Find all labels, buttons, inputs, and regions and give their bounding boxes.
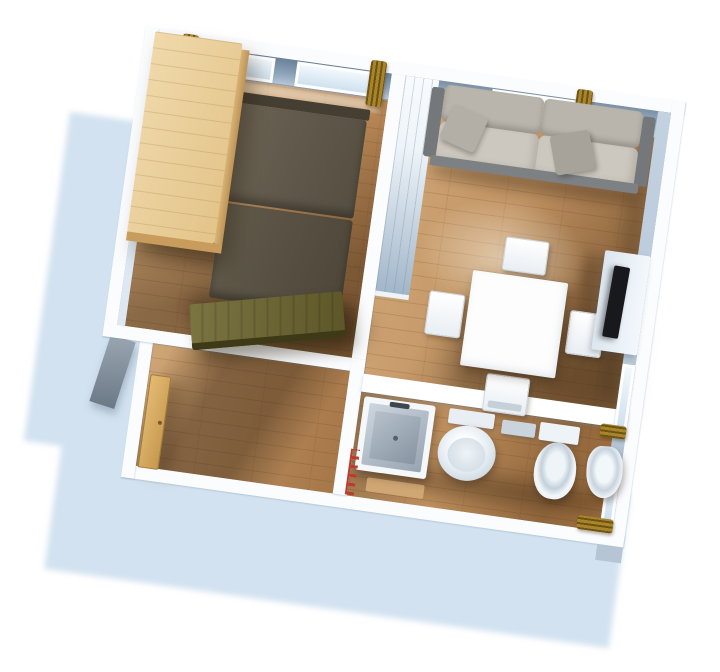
apartment-3d-floorplan (0, 0, 720, 672)
bed-duvet-upper (222, 102, 366, 218)
apartment-plan (83, 26, 685, 547)
dining-chair (502, 236, 550, 276)
bottom-right-corner-face (595, 544, 623, 563)
throw-pillow (549, 129, 595, 175)
dining-chair (424, 290, 466, 339)
dining-table (460, 270, 568, 378)
dining-chair (482, 373, 531, 417)
shower-basin (354, 396, 436, 479)
shower-basin-bowl (369, 411, 421, 465)
